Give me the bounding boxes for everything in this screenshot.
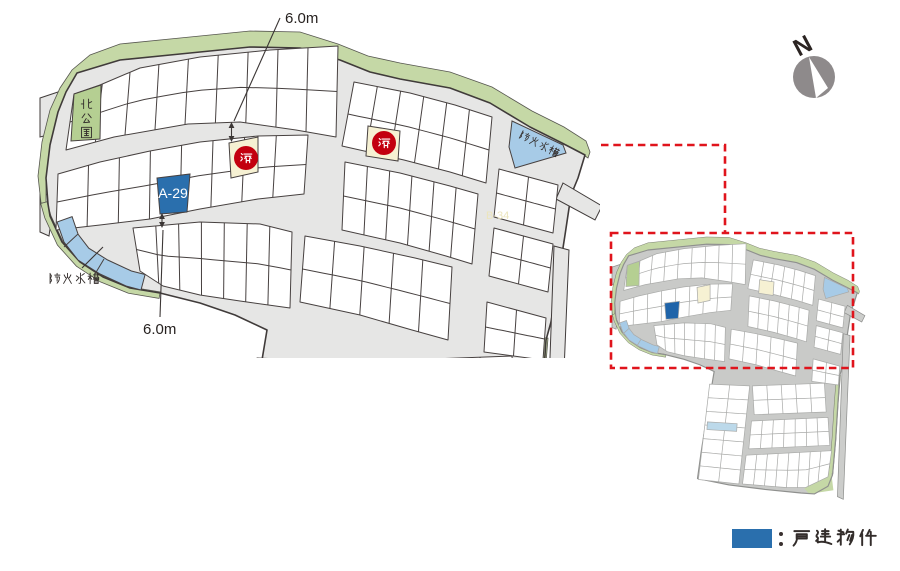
svg-text:B-34: B-34	[486, 210, 509, 222]
svg-text:6.0m: 6.0m	[143, 321, 176, 338]
svg-text:A-29: A-29	[158, 185, 188, 201]
svg-text:6.0m: 6.0m	[285, 10, 318, 27]
